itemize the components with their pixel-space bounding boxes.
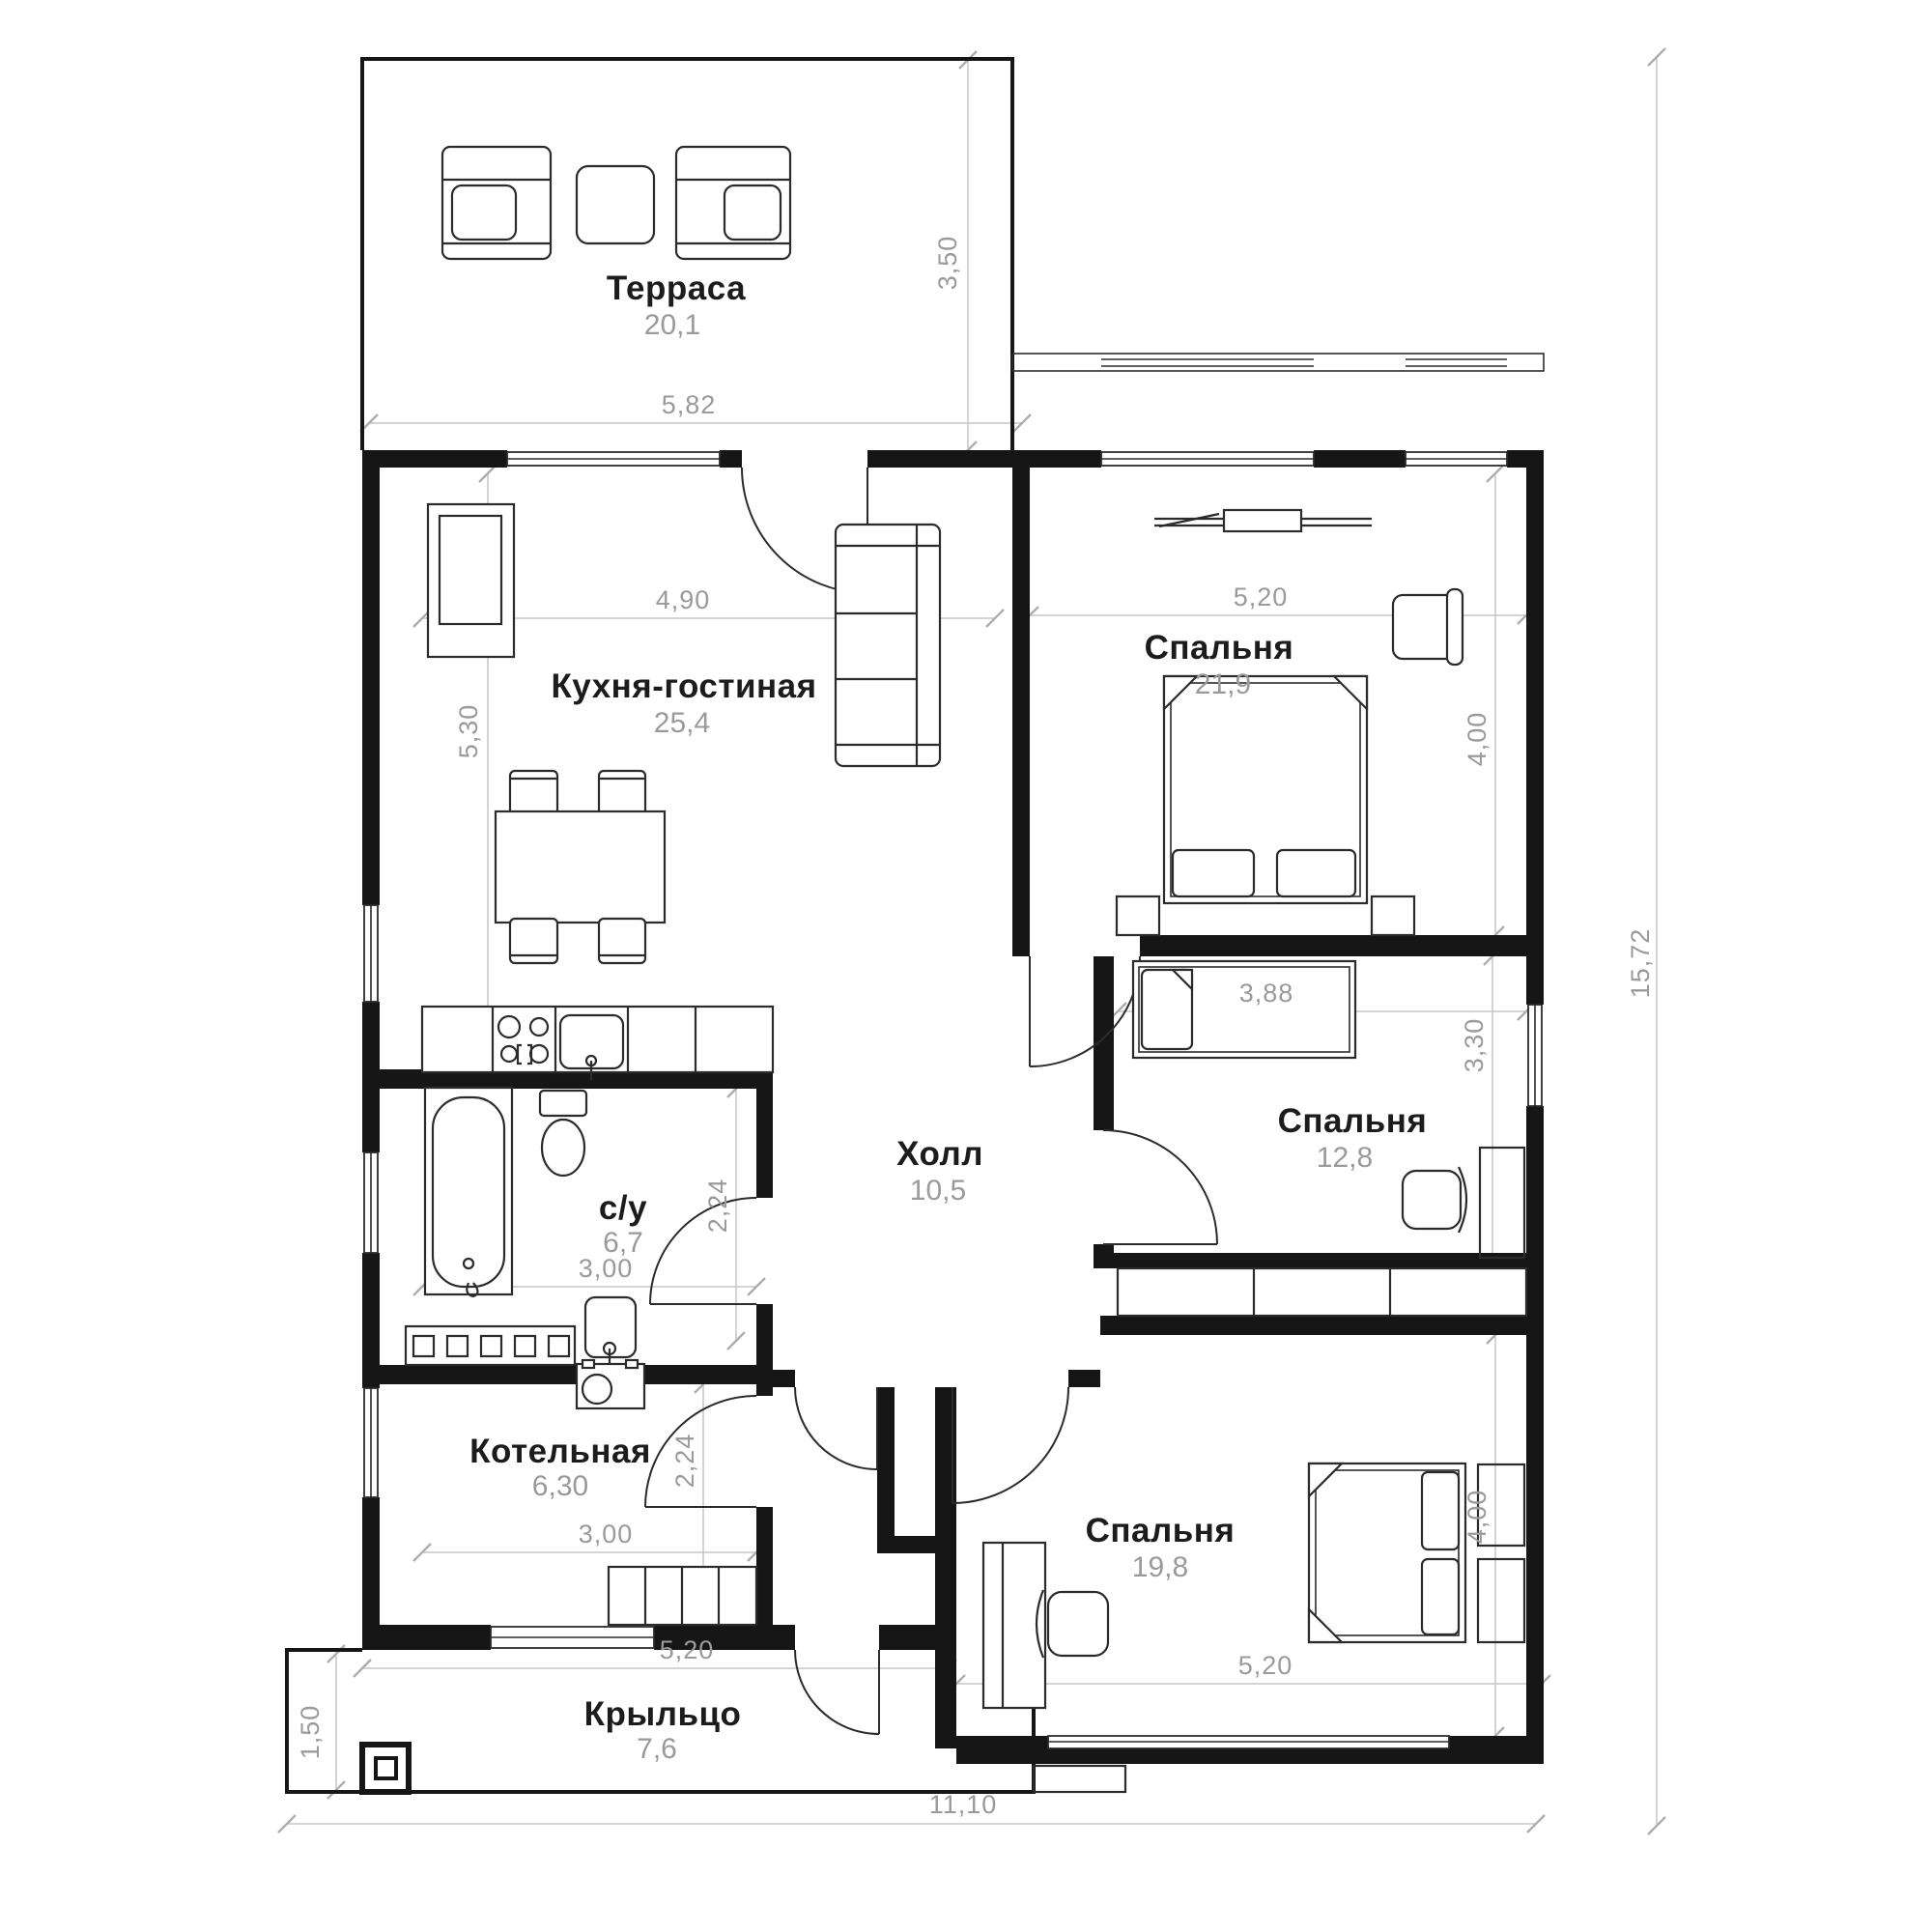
room-area-porch: 7,6 — [637, 1733, 677, 1765]
room-label-bedroom-2: Спальня — [1278, 1102, 1428, 1140]
toilet — [540, 1091, 586, 1176]
dim-4-00-bedroom1: 4,00 — [1463, 712, 1492, 767]
dim-2-24-boiler: 2,24 — [670, 1434, 699, 1489]
bathroom-fixtures — [406, 1088, 636, 1372]
kitchen-counter — [422, 1007, 773, 1080]
room-label-boiler: Котельная — [469, 1433, 651, 1470]
dim-5-20-porch: 5,20 — [660, 1635, 715, 1664]
nightstand-3b — [1478, 1559, 1524, 1642]
kitchen-cabinet — [428, 504, 514, 657]
door-boiler — [645, 1396, 756, 1507]
dim-5-82: 5,82 — [662, 390, 717, 419]
room-area-kitchen-living: 25,4 — [654, 707, 710, 739]
window-bedroom1-top-a — [1101, 359, 1314, 466]
nightstand-1a — [1117, 896, 1159, 935]
sofa — [836, 525, 940, 766]
dim-5-20-bedroom1: 5,20 — [1234, 582, 1289, 611]
window-bedroom1-top-b — [1406, 359, 1507, 466]
bedroom1-furniture — [1117, 510, 1463, 935]
window-bedroom3-bottom — [1048, 1736, 1449, 1748]
dim-15-72: 15,72 — [1626, 928, 1655, 999]
chair-bedroom3 — [1037, 1590, 1108, 1658]
window-left-bathroom — [364, 1152, 378, 1253]
room-area-bedroom-3: 19,8 — [1132, 1551, 1188, 1583]
window-left-boiler — [364, 1388, 378, 1497]
tv-console — [1154, 510, 1372, 531]
dim-1-50-porch: 1,50 — [296, 1705, 325, 1760]
door-entry — [795, 1650, 879, 1734]
bathroom-radiator — [406, 1326, 575, 1365]
terrace-table — [577, 166, 654, 243]
dim-3-50: 3,50 — [933, 236, 962, 291]
desk-bedroom2 — [1480, 1148, 1524, 1258]
dim-3-30: 3,30 — [1460, 1018, 1489, 1073]
floor-plan-canvas: Терраса 20,1 Кухня-гостиная 25,4 Спальня… — [0, 0, 1932, 1932]
door-bedroom3 — [952, 1387, 1068, 1503]
dim-4-90: 4,90 — [656, 585, 711, 614]
dim-2-24-bathroom: 2,24 — [703, 1179, 732, 1234]
room-area-bedroom-2: 12,8 — [1317, 1142, 1373, 1174]
armchair-bedroom1 — [1393, 589, 1463, 665]
dim-3-00-bathroom: 3,00 — [579, 1254, 634, 1283]
porch-step — [1034, 1766, 1125, 1792]
terrace-armchair-2 — [676, 147, 790, 259]
dim-5-20-bedroom3: 5,20 — [1238, 1651, 1293, 1680]
room-label-terrace: Терраса — [607, 270, 746, 307]
terrace-armchair-1 — [442, 147, 551, 259]
dining-set — [496, 771, 665, 963]
floor-plan-page: Терраса 20,1 Кухня-гостиная 25,4 Спальня… — [0, 0, 1932, 1932]
nightstand-1b — [1372, 896, 1414, 935]
door-bedroom2 — [1103, 1130, 1217, 1244]
dim-3-00-boiler: 3,00 — [579, 1520, 634, 1548]
room-area-bedroom-1: 21,9 — [1195, 668, 1251, 700]
chair-bedroom2 — [1403, 1167, 1466, 1233]
bed-single — [1133, 961, 1355, 1058]
room-label-hall: Холл — [896, 1135, 983, 1173]
dim-5-30: 5,30 — [454, 704, 483, 759]
door-vestibule — [795, 1387, 877, 1469]
window-right-bedroom2 — [1528, 1005, 1542, 1106]
room-label-porch: Крыльцо — [584, 1695, 742, 1733]
room-label-bathroom: с/у — [599, 1189, 647, 1227]
window-boiler-bottom — [491, 1627, 654, 1648]
room-label-bedroom-3: Спальня — [1086, 1512, 1236, 1549]
room-area-boiler: 6,30 — [532, 1470, 588, 1502]
bed-double-1 — [1164, 676, 1367, 903]
bed-double-3 — [1309, 1463, 1465, 1642]
window-kitchen-top — [507, 452, 720, 466]
room-label-kitchen-living: Кухня-гостиная — [551, 668, 816, 705]
room-label-bedroom-1: Спальня — [1145, 629, 1294, 667]
bathtub — [425, 1088, 512, 1296]
dim-3-88: 3,88 — [1239, 979, 1294, 1008]
window-left-kitchen — [364, 905, 378, 1002]
dim-4-00-bedroom3: 4,00 — [1463, 1490, 1492, 1545]
room-area-hall: 10,5 — [910, 1175, 966, 1207]
dim-11-10: 11,10 — [929, 1790, 998, 1819]
hall-closet — [609, 1567, 756, 1625]
wardrobe-band — [1118, 1268, 1526, 1316]
room-area-terrace: 20,1 — [644, 309, 700, 341]
boiler-unit — [577, 1360, 644, 1408]
